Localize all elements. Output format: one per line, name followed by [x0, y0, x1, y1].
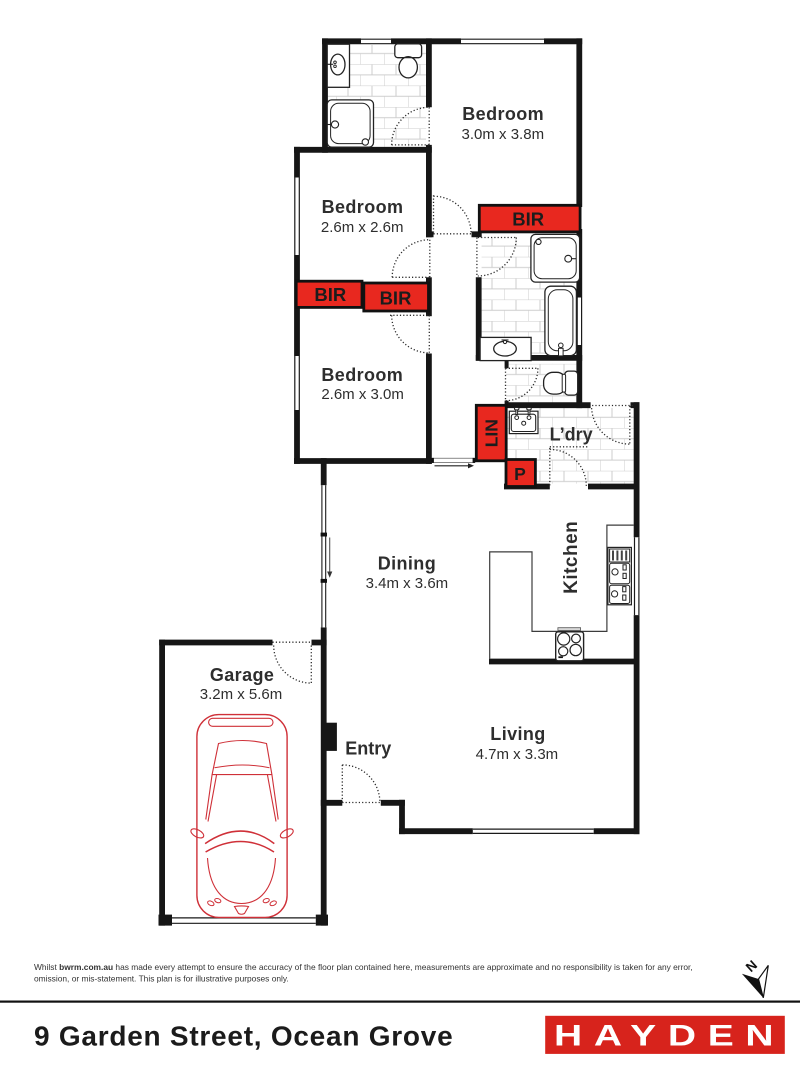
- svg-text:Whilst bwrm.com.au has made ev: Whilst bwrm.com.au has made every attemp…: [34, 962, 693, 972]
- svg-text:4.7m x 3.3m: 4.7m x 3.3m: [476, 746, 559, 763]
- svg-text:2.6m x 2.6m: 2.6m x 2.6m: [321, 219, 404, 236]
- svg-text:Bedroom: Bedroom: [321, 365, 403, 385]
- svg-text:Bedroom: Bedroom: [462, 104, 544, 124]
- svg-text:Entry: Entry: [345, 738, 391, 758]
- svg-text:3.4m x 3.6m: 3.4m x 3.6m: [366, 575, 449, 592]
- svg-text:Bedroom: Bedroom: [322, 197, 404, 217]
- svg-text:omission, or mis-statement. Th: omission, or mis-statement. This plan is…: [34, 973, 289, 983]
- svg-text:9 Garden Street, Ocean Grove: 9 Garden Street, Ocean Grove: [34, 1021, 453, 1052]
- svg-text:Garage: Garage: [210, 665, 274, 685]
- svg-text:HAYDEN: HAYDEN: [554, 1019, 785, 1052]
- svg-text:BIR: BIR: [380, 288, 412, 309]
- svg-text:Living: Living: [490, 724, 545, 744]
- svg-text:BIR: BIR: [512, 208, 544, 229]
- svg-text:2.6m x 3.0m: 2.6m x 3.0m: [321, 386, 404, 403]
- svg-text:BIR: BIR: [314, 284, 346, 305]
- svg-text:L’dry: L’dry: [550, 424, 593, 444]
- svg-text:LIN: LIN: [481, 419, 501, 447]
- svg-text:Dining: Dining: [378, 554, 436, 574]
- svg-text:P: P: [514, 464, 526, 484]
- svg-text:3.0m x 3.8m: 3.0m x 3.8m: [462, 126, 545, 143]
- svg-text:Kitchen: Kitchen: [561, 521, 582, 594]
- svg-text:3.2m x 5.6m: 3.2m x 5.6m: [200, 686, 283, 703]
